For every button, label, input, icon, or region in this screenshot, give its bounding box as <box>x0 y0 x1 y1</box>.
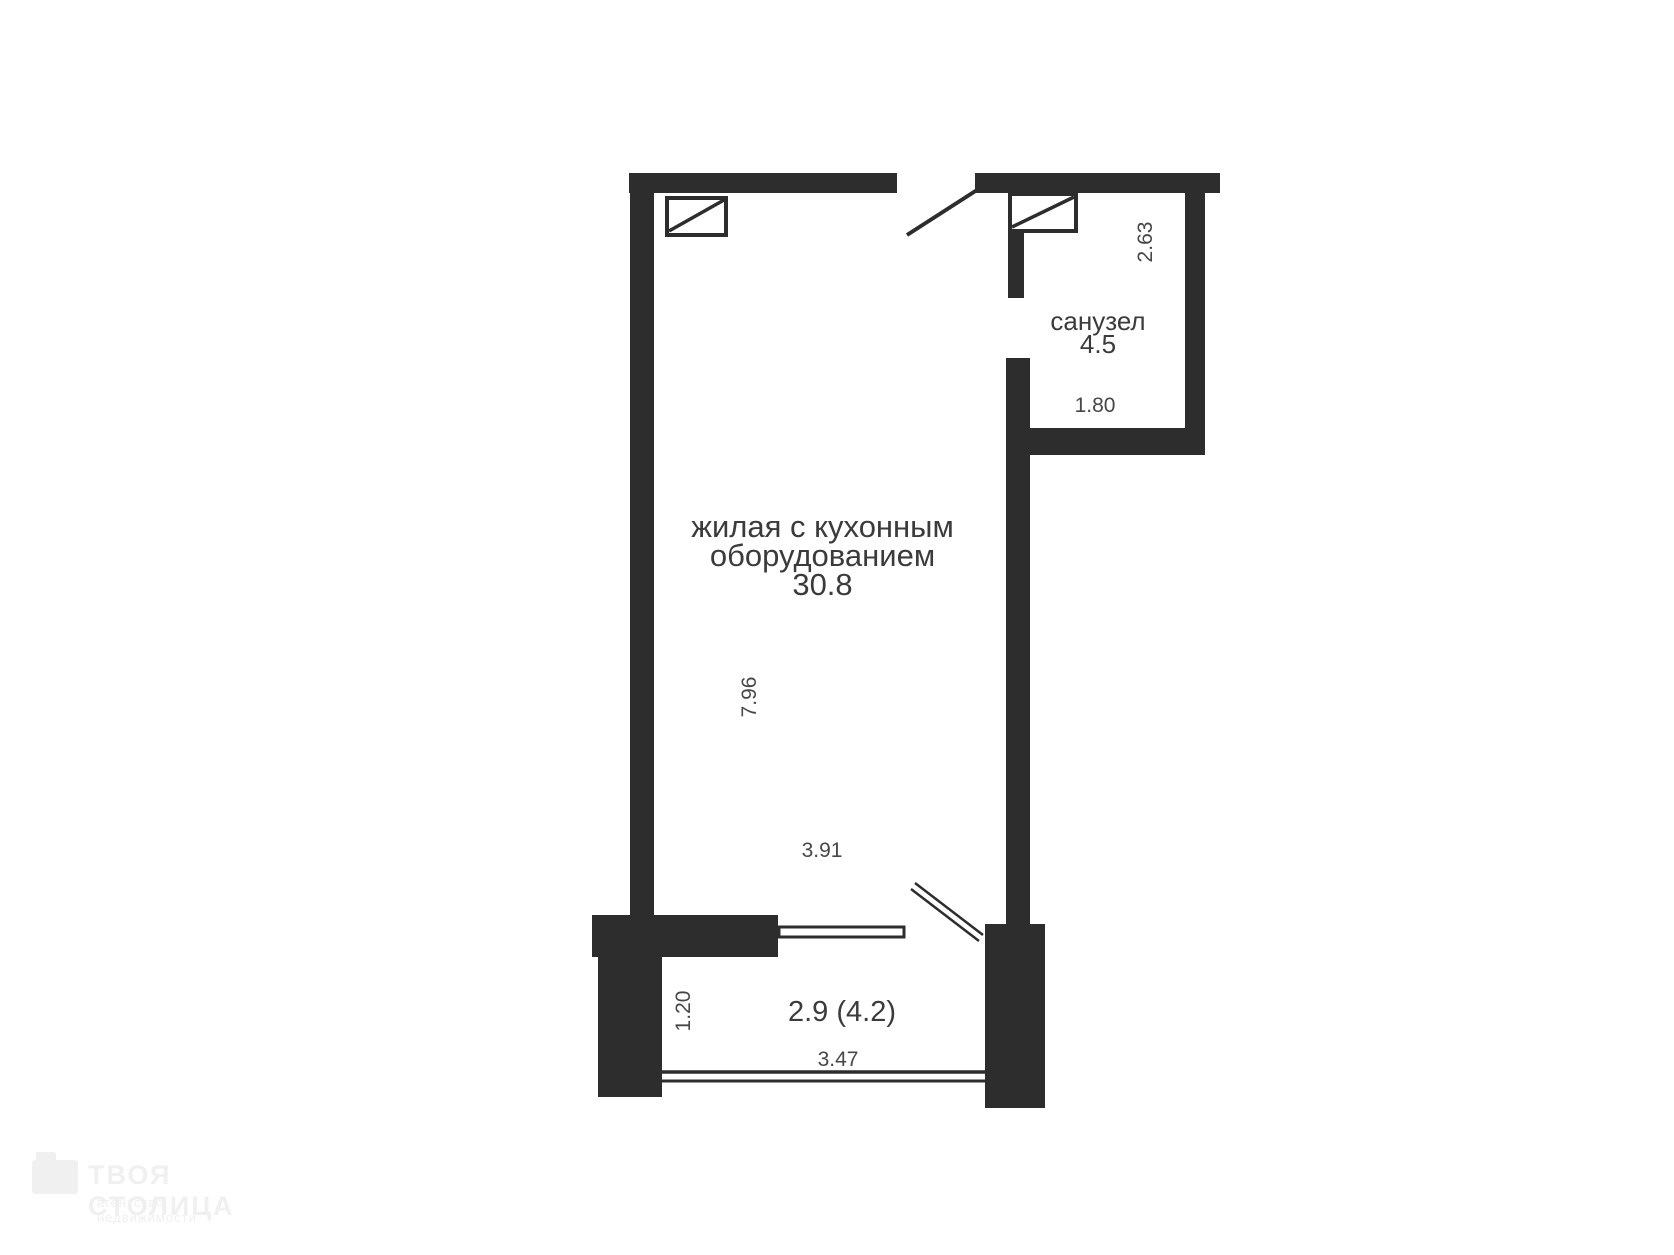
wall-partition-bathroom-upper <box>1008 228 1024 298</box>
bathroom-area: 4.5 <box>1012 333 1184 356</box>
dim-living-depth: 7.96 <box>738 677 762 718</box>
vent-shaft-symbol-living <box>665 196 728 237</box>
bathroom-label: санузел 4.5 <box>1012 310 1184 356</box>
wall-top-living <box>629 173 897 193</box>
dim-bathroom-depth: 2.63 <box>1134 222 1158 263</box>
wall-right-bathroom <box>1185 190 1205 455</box>
dim-balcony-width: 3.47 <box>788 1048 888 1072</box>
dim-bathroom-width: 1.80 <box>1040 394 1150 418</box>
pier-balcony-left <box>598 957 662 1097</box>
wall-top-bathroom <box>975 173 1220 193</box>
balcony-area-label: 2.9 (4.2) <box>742 996 942 1029</box>
balcony-door-swing-line-outer <box>915 883 983 935</box>
balcony-window <box>779 927 904 937</box>
entrance-door-swing <box>907 190 977 235</box>
wall-right-living <box>1006 358 1030 925</box>
living-room-label: жилая с кухонным оборудованием 30.8 <box>630 512 1015 599</box>
watermark-tagline-text: агентство недвижимости <box>97 1195 197 1225</box>
dim-living-width: 3.91 <box>782 839 862 863</box>
balcony-door-swing-line-inner <box>911 889 979 941</box>
wall-bottom-bathroom <box>1006 428 1205 455</box>
vent-shaft-symbol-bathroom <box>1008 192 1078 233</box>
dim-balcony-depth: 1.20 <box>672 991 696 1032</box>
floor-plan: жилая с кухонным оборудованием 30.8 сану… <box>0 0 1674 1255</box>
pier-balcony-right <box>985 924 1045 1108</box>
living-room-name-line2: оборудованием <box>630 541 1015 570</box>
living-room-name-line1: жилая с кухонным <box>630 512 1015 541</box>
pier-balcony-left-block <box>592 915 778 957</box>
living-room-area: 30.8 <box>630 570 1015 599</box>
watermark-logo-icon <box>30 1150 82 1196</box>
